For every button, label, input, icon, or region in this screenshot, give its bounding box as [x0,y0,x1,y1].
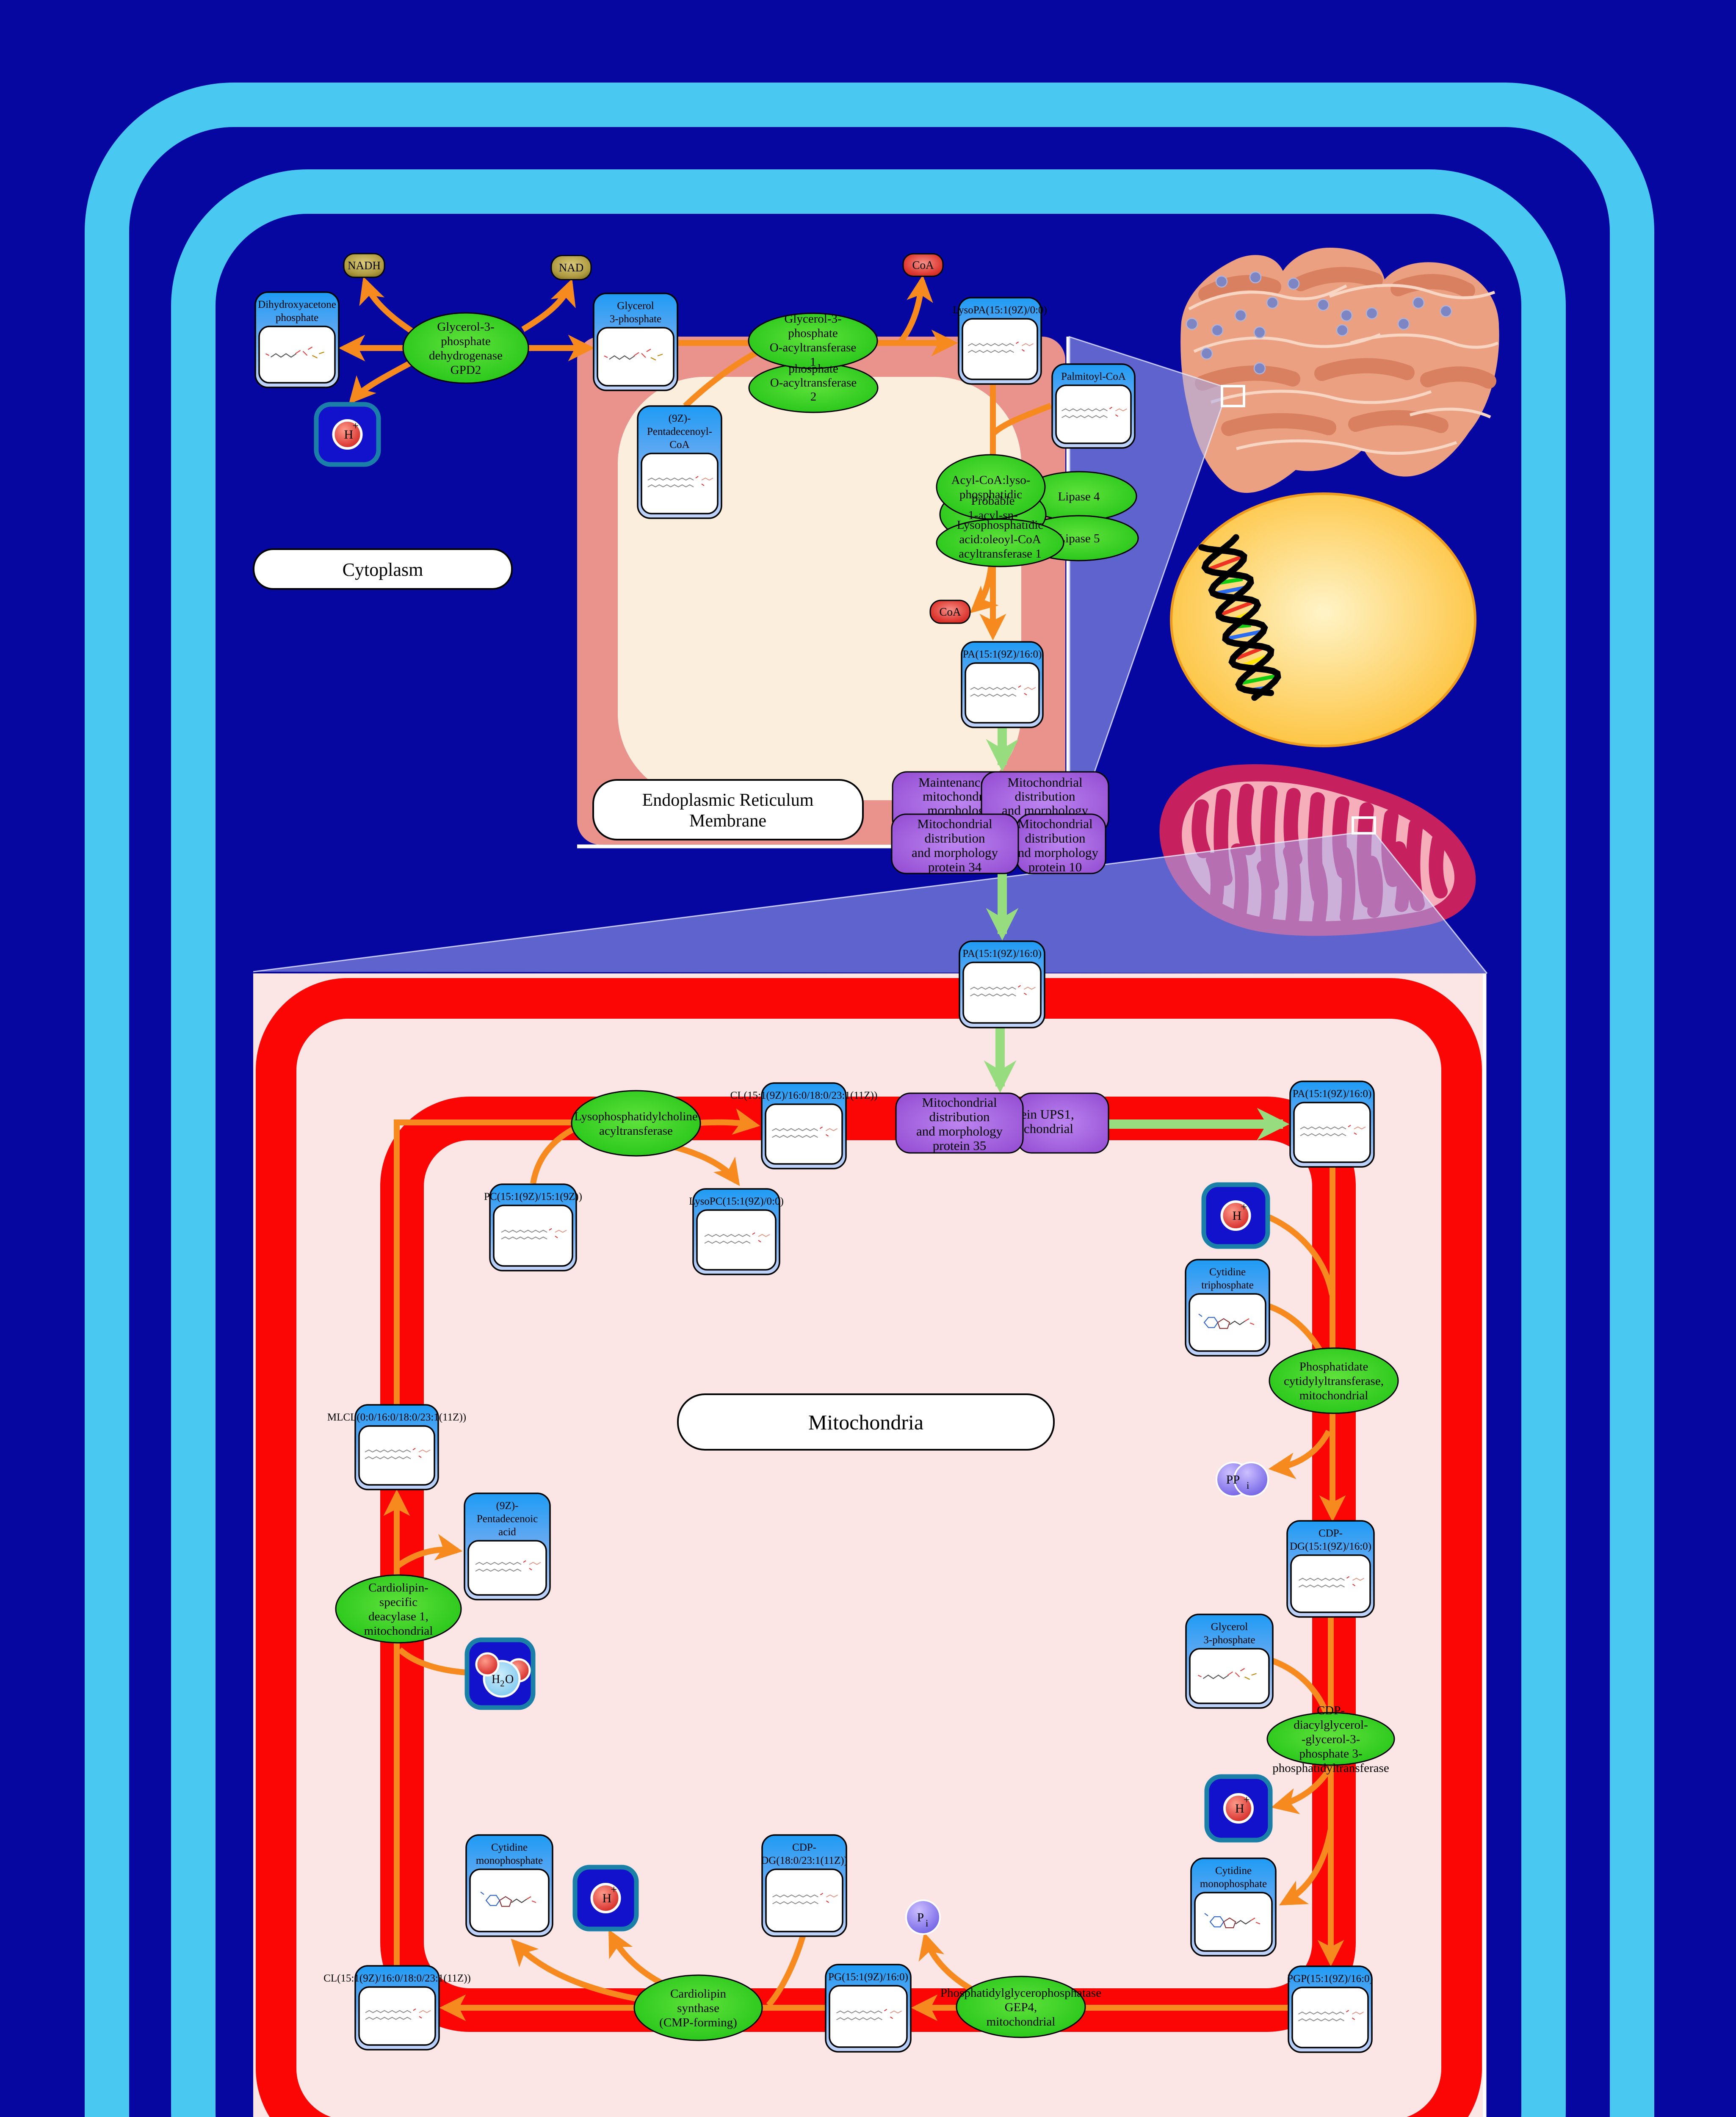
svg-text:+: + [353,420,359,432]
svg-text:MLCL(0:0/16:0/18:0/23:1(11Z)): MLCL(0:0/16:0/18:0/23:1(11Z)) [327,1412,466,1423]
svg-text:and morphology: and morphology [912,845,998,860]
svg-text:CoA: CoA [939,605,961,618]
svg-text:Mitochondrial: Mitochondrial [1017,816,1092,831]
svg-text:(9Z)-: (9Z)- [496,1500,519,1512]
svg-text:NAD: NAD [559,261,584,274]
svg-text:Glycerol: Glycerol [617,300,654,312]
svg-text:PGP(15:1(9Z)/16:0): PGP(15:1(9Z)/16:0) [1287,1973,1373,1984]
svg-text:i: i [926,1918,928,1929]
svg-text:NADH: NADH [348,259,381,272]
svg-text:CDP-: CDP- [792,1842,816,1853]
svg-text:Phosphatidylglycerophosphatase: Phosphatidylglycerophosphatase [940,1986,1101,2000]
svg-text:distribution: distribution [1015,789,1075,804]
svg-text:P: P [917,1911,924,1924]
svg-text:protein 35: protein 35 [933,1138,987,1153]
svg-text:distribution: distribution [925,831,985,846]
svg-text:distribution: distribution [1025,831,1086,846]
svg-text:mitochondrial: mitochondrial [364,1624,433,1638]
svg-text:acid:oleoyl-CoA: acid:oleoyl-CoA [959,533,1041,546]
svg-text:Cardiolipin-: Cardiolipin- [368,1581,428,1595]
svg-text:Pentadecenoic: Pentadecenoic [477,1513,538,1525]
svg-text:and morphology: and morphology [916,1124,1003,1139]
svg-text:Membrane: Membrane [689,811,766,831]
svg-text:LysoPA(15:1(9Z)/0:0): LysoPA(15:1(9Z)/0:0) [953,304,1047,316]
svg-text:deacylase 1,: deacylase 1, [368,1610,428,1623]
svg-text:2: 2 [500,1678,505,1689]
svg-text:monophosphate: monophosphate [1200,1878,1267,1890]
svg-text:DG(18:0/23:1(11Z)): DG(18:0/23:1(11Z)) [761,1855,848,1866]
svg-text:(9Z)-: (9Z)- [669,413,691,424]
svg-text:3-phosphate: 3-phosphate [1203,1634,1255,1646]
svg-text:Lipase 4: Lipase 4 [1058,490,1100,503]
svg-text:cytidylyltransferase,: cytidylyltransferase, [1284,1374,1384,1388]
svg-text:H: H [1235,1802,1244,1816]
svg-text:mitochondrial: mitochondrial [987,2015,1056,2029]
svg-text:+: + [1244,1794,1250,1806]
svg-text:+: + [1241,1201,1247,1213]
svg-text:+: + [611,1883,617,1896]
svg-text:phosphate: phosphate [441,334,491,348]
svg-text:(CMP-forming): (CMP-forming) [659,2016,737,2029]
svg-text:acid: acid [498,1526,516,1538]
svg-text:PC(15:1(9Z)/15:1(9Z)): PC(15:1(9Z)/15:1(9Z)) [484,1191,582,1202]
svg-text:CoA: CoA [669,439,689,450]
svg-text:DG(15:1(9Z)/16:0): DG(15:1(9Z)/16:0) [1290,1541,1371,1552]
svg-text:Palmitoyl-CoA: Palmitoyl-CoA [1061,371,1126,382]
svg-text:PA(15:1(9Z)/16:0): PA(15:1(9Z)/16:0) [963,649,1042,660]
svg-text:protein 10: protein 10 [1028,860,1082,874]
svg-text:phosphatidyltransferase: phosphatidyltransferase [1272,1761,1389,1775]
svg-text:H: H [344,428,354,442]
svg-text:phosphate: phosphate [276,312,318,323]
svg-text:Mitochondrial: Mitochondrial [917,816,992,831]
svg-text:Cardiolipin: Cardiolipin [670,1987,727,2001]
svg-text:O: O [505,1673,514,1686]
svg-text:Dihydroxyacetone: Dihydroxyacetone [258,299,336,310]
svg-text:diacylglycerol-: diacylglycerol- [1294,1718,1368,1732]
svg-text:PA(15:1(9Z)/16:0): PA(15:1(9Z)/16:0) [962,948,1042,959]
svg-text:Glycerol: Glycerol [1211,1621,1248,1633]
svg-text:Lysophosphatidic: Lysophosphatidic [957,518,1044,532]
svg-text:-glycerol-3-: -glycerol-3- [1302,1733,1360,1746]
svg-text:distribution: distribution [929,1109,990,1124]
svg-text:Acyl-CoA:lyso-: Acyl-CoA:lyso- [951,473,1031,487]
svg-text:H: H [603,1891,612,1905]
svg-text:3-phosphate: 3-phosphate [610,313,661,325]
svg-text:Lysophosphatidylcholine: Lysophosphatidylcholine [574,1110,698,1123]
svg-text:Probable: Probable [971,494,1015,508]
svg-text:Pentadecenoyl-: Pentadecenoyl- [647,426,712,437]
svg-text:Cytoplasm: Cytoplasm [343,559,423,580]
svg-text:PA(15:1(9Z)/16:0): PA(15:1(9Z)/16:0) [1293,1088,1372,1100]
svg-text:Glycerol-3-: Glycerol-3- [437,320,494,334]
svg-text:and morphology: and morphology [1012,845,1099,860]
svg-text:Mitochondrial: Mitochondrial [922,1095,997,1110]
svg-text:phosphate: phosphate [788,362,838,376]
svg-text:CL(15:1(9Z)/16:0/18:0/23:1(11Z: CL(15:1(9Z)/16:0/18:0/23:1(11Z)) [730,1090,878,1101]
svg-text:GPD2: GPD2 [451,363,481,377]
svg-text:protein 34: protein 34 [928,860,982,874]
svg-text:H: H [1233,1209,1242,1223]
svg-text:mitochondrial: mitochondrial [1299,1389,1368,1402]
svg-text:2: 2 [810,390,817,404]
svg-text:triphosphate: triphosphate [1201,1280,1254,1291]
svg-text:CDP-: CDP- [1319,1528,1343,1539]
svg-text:LysoPC(15:1(9Z)/0:0): LysoPC(15:1(9Z)/0:0) [689,1196,784,1207]
svg-text:CDP-: CDP- [1317,1704,1345,1717]
svg-text:Cytidine: Cytidine [1209,1266,1246,1278]
svg-text:acyltransferase 1: acyltransferase 1 [959,547,1042,561]
svg-text:dehydrogenase: dehydrogenase [429,349,503,362]
svg-text:Mitochondria: Mitochondria [808,1410,923,1434]
svg-text:specific: specific [379,1595,417,1609]
svg-text:Cytidine: Cytidine [491,1842,528,1853]
svg-text:O-acyltransferase: O-acyltransferase [770,341,857,354]
svg-text:PP: PP [1226,1473,1240,1487]
svg-text:monophosphate: monophosphate [476,1855,543,1866]
svg-text:synthase: synthase [677,2001,719,2015]
svg-text:Cytidine: Cytidine [1215,1865,1252,1877]
svg-text:phosphate: phosphate [788,326,838,340]
svg-text:Mitochondrial: Mitochondrial [1007,775,1082,790]
svg-text:Glycerol-3-: Glycerol-3- [784,312,841,326]
svg-text:GEP4,: GEP4, [1005,2001,1037,2014]
svg-text:CoA: CoA [912,259,934,271]
svg-text:Phosphatidate: Phosphatidate [1299,1360,1368,1374]
svg-text:H: H [492,1673,500,1686]
svg-text:PG(15:1(9Z)/16:0): PG(15:1(9Z)/16:0) [828,1971,908,1983]
svg-text:acyltransferase: acyltransferase [599,1124,673,1138]
svg-text:i: i [1247,1480,1249,1491]
svg-text:phosphate 3-: phosphate 3- [1299,1747,1363,1760]
svg-text:CL(15:1(9Z)/16:0/18:0/23:1(11Z: CL(15:1(9Z)/16:0/18:0/23:1(11Z)) [323,1973,471,1984]
svg-text:Endoplasmic Reticulum: Endoplasmic Reticulum [642,790,814,810]
svg-text:O-acyltransferase: O-acyltransferase [770,376,857,390]
